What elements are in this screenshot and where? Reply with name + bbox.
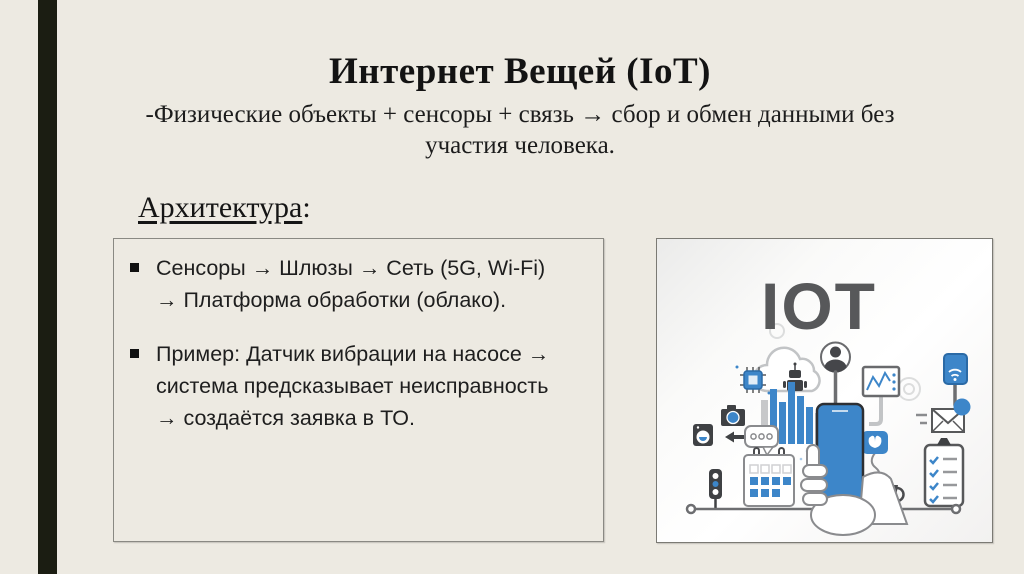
chart-monitor-icon	[863, 367, 899, 424]
baseline-left-circle	[687, 505, 695, 513]
slide-background: Интернет Вещей (IoT) -Физические объекты…	[0, 0, 1024, 574]
washing-machine-icon	[693, 424, 713, 446]
person-avatar-icon	[821, 343, 850, 404]
subtitle-line-1: -Физические объекты + сенсоры + связь → …	[60, 99, 980, 130]
bullet-square-icon	[130, 263, 139, 272]
clipboard-checklist-icon	[925, 438, 963, 506]
list-item: Сенсоры → Шлюзы → Сеть (5G, Wi-Fi) → Пла…	[127, 252, 585, 317]
subtitle-line-2: участия человека.	[60, 130, 980, 161]
slide-title: Интернет Вещей (IoT)	[60, 50, 980, 93]
slide-subtitle: -Физические объекты + сенсоры + связь → …	[60, 99, 980, 161]
camera-icon	[721, 405, 745, 426]
accent-bar	[38, 0, 57, 574]
traffic-light-icon	[709, 469, 722, 509]
bullet-text: Сенсоры → Шлюзы → Сеть (5G, Wi-Fi) → Пла…	[156, 252, 552, 317]
calendar-icon	[744, 448, 794, 506]
speech-bubble-icon	[745, 426, 778, 455]
iot-illustration: IOT	[657, 239, 992, 542]
bullet-text: Пример: Датчик вибрации на насосе → сист…	[156, 338, 552, 435]
architecture-bullet-box: Сенсоры → Шлюзы → Сеть (5G, Wi-Fi) → Пла…	[113, 238, 604, 542]
iot-label: IOT	[761, 269, 877, 343]
list-item: Пример: Датчик вибрации на насосе → сист…	[127, 338, 585, 435]
section-heading-word: Архитектура	[138, 191, 302, 224]
section-heading: Архитектура:	[138, 191, 311, 225]
tablet-wifi-icon	[944, 354, 967, 405]
iot-illustration-panel: IOT	[656, 238, 993, 543]
envelope-icon	[916, 399, 971, 433]
baseline-right-circle	[952, 505, 960, 513]
hand-phone-icon	[801, 404, 907, 535]
bullet-square-icon	[130, 349, 139, 358]
section-heading-colon: :	[302, 191, 310, 224]
